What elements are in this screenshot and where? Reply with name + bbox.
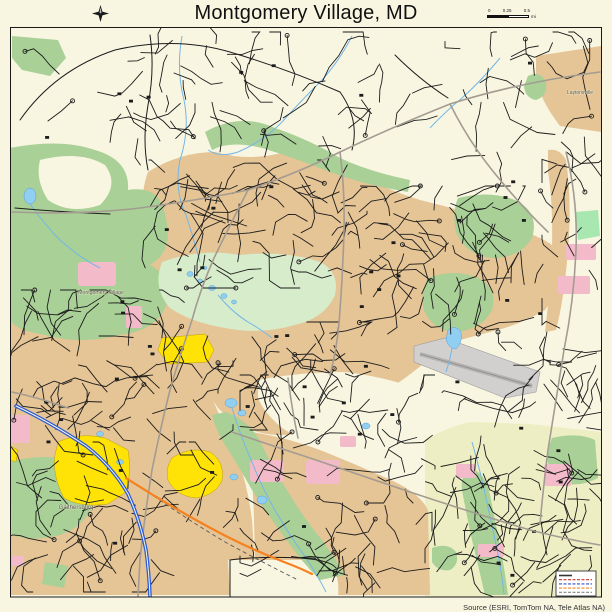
map-page: Montgomery Village, MD 0 0.25 0.5 mi [0, 0, 612, 612]
map-label: Laytonsville [567, 90, 593, 96]
map-label: Gaithersburg [59, 505, 94, 511]
map-layers: Montgomery VillageGaithersburgLaytonsvil… [8, 25, 610, 600]
legend-inset [556, 571, 596, 596]
source-attribution: Source (ESRI, TomTom NA, Tele Atlas NA) [463, 603, 605, 612]
map-label: Montgomery Village [78, 290, 124, 296]
map-canvas: Montgomery VillageGaithersburgLaytonsvil… [0, 0, 612, 612]
